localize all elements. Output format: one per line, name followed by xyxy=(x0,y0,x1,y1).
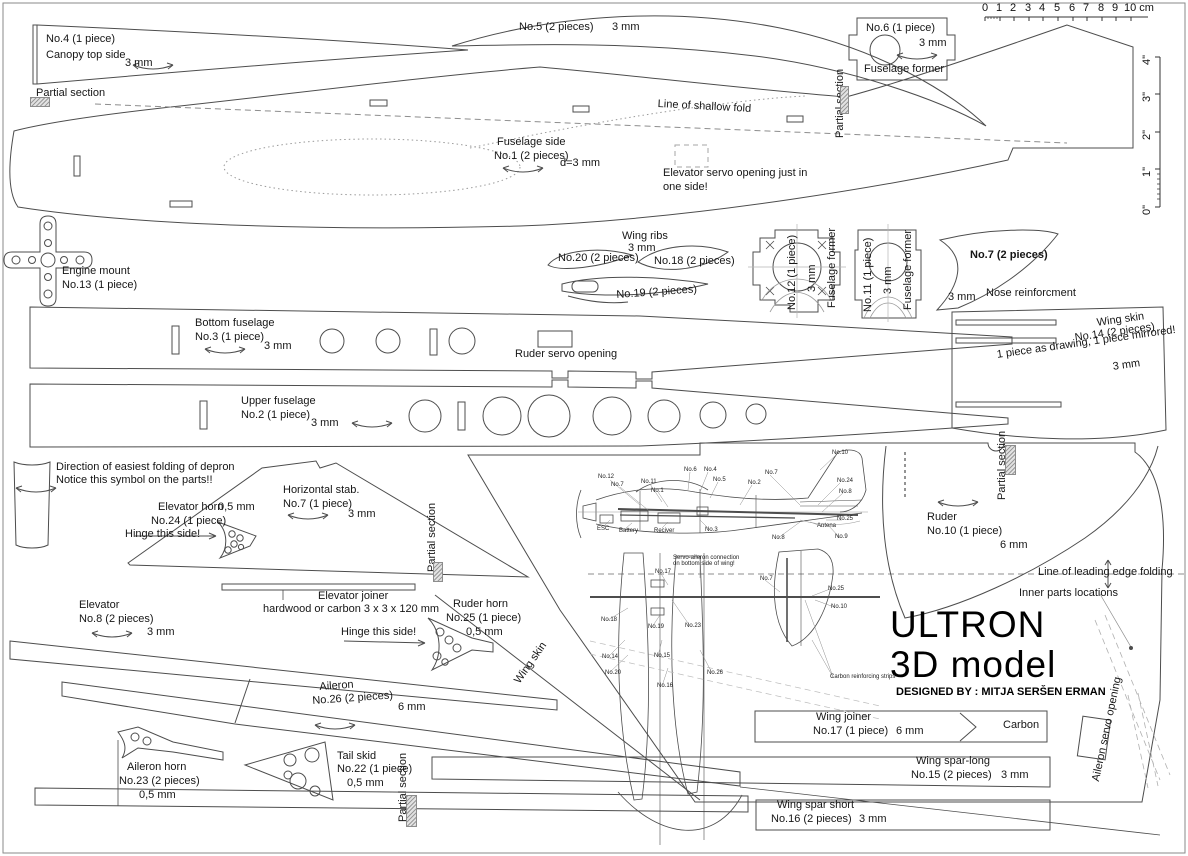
ruler-cm-6: 6 xyxy=(1069,2,1075,14)
model-label: No.25 xyxy=(828,586,844,592)
wing-skin-main-part xyxy=(435,443,1185,802)
label-sparshort-thick: 3 mm xyxy=(859,813,887,825)
model-label: No.5 xyxy=(713,477,726,483)
label-sparlong-thick: 3 mm xyxy=(1001,769,1029,781)
label-no18: No.18 (2 pieces) xyxy=(654,255,735,267)
model-label: ESC xyxy=(597,526,609,532)
label-ehorn-no: No.24 (1 piece) xyxy=(151,515,226,527)
model-label: No.20 xyxy=(605,670,621,676)
label-hstab-thick: 3 mm xyxy=(348,508,376,520)
model-label: No.8 xyxy=(772,535,785,541)
ruler-in-3: 3" xyxy=(1141,92,1153,102)
model-label: No.9 xyxy=(835,534,848,540)
model-label: No.2 xyxy=(748,480,761,486)
label-sparshort-name: Wing spar short xyxy=(777,799,854,811)
label-ahorn-no: No.23 (2 pieces) xyxy=(119,775,200,787)
label-tskid-thick: 0,5 mm xyxy=(347,777,384,789)
label-aileron-name: Aileron xyxy=(319,679,354,693)
label-no5: No.5 (2 pieces) xyxy=(519,21,594,33)
model-label: No.14 xyxy=(602,654,618,660)
model-label: No.4 xyxy=(704,467,717,473)
label-inner-parts: Inner parts locations xyxy=(1019,587,1118,599)
label-engine-name: Engine mount xyxy=(62,265,130,277)
model-label: No.1 xyxy=(651,488,664,494)
label-leading-edge: Line of leading edge folding xyxy=(1038,566,1173,578)
label-bottom-fus-no: No.3 (1 piece) xyxy=(195,331,264,343)
label-no12-name: Fuselage former xyxy=(826,228,838,308)
ruler-cm-3: 3 xyxy=(1025,2,1031,14)
label-ruder-no: No.10 (1 piece) xyxy=(927,525,1002,537)
model-label: No.25 xyxy=(837,516,853,522)
fuselage-side-part xyxy=(10,25,1133,228)
model-label: No.18 xyxy=(601,617,617,623)
hatch-marker-1 xyxy=(30,97,50,107)
label-wjoiner-thick: 6 mm xyxy=(896,725,924,737)
model-label: No.10 xyxy=(831,604,847,610)
label-ruder-name: Ruder xyxy=(927,511,957,523)
model-label: No.12 xyxy=(598,474,614,480)
aileron-horn-part xyxy=(118,727,223,760)
ruler-in-0: 0" xyxy=(1141,205,1153,215)
label-depron-1: Direction of easiest folding of depron xyxy=(56,461,235,473)
ruler-cm-1: 1 xyxy=(996,2,1002,14)
label-wing-ribs: Wing ribs xyxy=(622,230,668,242)
label-wjoiner-material: Carbon xyxy=(1003,719,1039,731)
elevator-servo-opening xyxy=(675,145,708,167)
plan-sheet: No.4 (1 piece) Canopy top side 3 mm Part… xyxy=(0,0,1188,856)
model-label: Carbon reinforcing strips xyxy=(830,674,895,680)
model-label: No.19 xyxy=(648,624,664,630)
label-nose-name: Nose reinforcment xyxy=(986,287,1076,299)
label-no4: No.4 (1 piece) xyxy=(46,33,115,45)
label-fus-side-name: Fuselage side xyxy=(497,136,566,148)
model-label: No.7 xyxy=(611,482,624,488)
model-label: No.7 xyxy=(760,576,773,582)
model-label: on bottom side of wing! xyxy=(673,561,735,567)
model-label: No.24 xyxy=(837,478,853,484)
label-ehorn-name: Elevator horn xyxy=(158,501,223,513)
label-rhorn-hinge: Hinge this side! xyxy=(341,626,416,638)
model-label: Battery xyxy=(619,528,638,534)
page-subtitle: 3D model xyxy=(890,645,1056,686)
engine-mount-part xyxy=(4,216,92,306)
label-no12: No.12 (1 piece) xyxy=(786,235,798,310)
model-label: Reciver xyxy=(654,528,674,534)
label-elev-servo-2: one side! xyxy=(663,181,708,193)
ruler-in-2: 2" xyxy=(1141,130,1153,140)
label-no6-name: Fuselage former xyxy=(864,63,944,75)
label-elevator-name: Elevator xyxy=(79,599,119,611)
model-label: No.26 xyxy=(707,670,723,676)
label-elevator-thick: 3 mm xyxy=(147,626,175,638)
model-label: No.3 xyxy=(705,527,718,533)
label-wjoiner-no: No.17 (1 piece) xyxy=(813,725,888,737)
ruler-cm-4: 4 xyxy=(1039,2,1045,14)
inch-ruler xyxy=(1155,57,1160,207)
label-no20: No.20 (2 pieces) xyxy=(558,252,639,264)
label-elev-servo-1: Elevator servo opening just in xyxy=(663,167,807,179)
hinge-arrow-ruder xyxy=(344,640,425,646)
ruler-in-4: 4" xyxy=(1141,55,1153,65)
label-hstab-name: Horizontal stab. xyxy=(283,484,359,496)
designer-credit: DESIGNED BY : MITJA SERŠEN ERMAN xyxy=(896,686,1106,698)
label-hstab-no: No.7 (1 piece) xyxy=(283,498,352,510)
label-no5-thick: 3 mm xyxy=(612,21,640,33)
hatch-marker-5 xyxy=(406,795,417,827)
label-rhorn-thick: 0,5 mm xyxy=(466,626,503,638)
label-no12-thick: 3 mm xyxy=(806,265,818,293)
label-upper-fus-thick: 3 mm xyxy=(311,417,339,429)
model-label: No.23 xyxy=(685,623,701,629)
label-no6-thick: 3 mm xyxy=(919,37,947,49)
model-label: No.8 xyxy=(839,489,852,495)
label-sparlong-name: Wing spar-long xyxy=(916,755,990,767)
label-ehorn-thick: 0,5 mm xyxy=(218,501,255,513)
carbon-chevron xyxy=(960,713,976,741)
label-no6: No.6 (1 piece) xyxy=(866,22,935,34)
label-aileron-thick: 6 mm xyxy=(398,701,426,713)
ruler-cm-10: 10 cm xyxy=(1124,2,1154,14)
hatch-marker-2 xyxy=(840,86,849,114)
label-upper-fus-name: Upper fuselage xyxy=(241,395,316,407)
elevator-part xyxy=(10,641,557,710)
label-ejoiner-name: Elevator joiner xyxy=(318,590,388,602)
label-rhorn-no: No.25 (1 piece) xyxy=(446,612,521,624)
label-ruder-thick: 6 mm xyxy=(1000,539,1028,551)
label-elevator-no: No.8 (2 pieces) xyxy=(79,613,154,625)
model-label: No.17 xyxy=(655,569,671,575)
label-bottom-fus-name: Bottom fuselage xyxy=(195,317,275,329)
label-no11-name: Fuselage former xyxy=(902,230,914,310)
label-ejoiner-spec: hardwood or carbon 3 x 3 x 120 mm xyxy=(263,603,439,615)
label-sparshort-no: No.16 (2 pieces) xyxy=(771,813,852,825)
label-bottom-fus-thick: 3 mm xyxy=(264,340,292,352)
ruler-in-1: 1" xyxy=(1141,167,1153,177)
label-canopy-thick: 3 mm xyxy=(125,57,153,69)
label-rhorn-name: Ruder horn xyxy=(453,598,508,610)
model-label: No.15 xyxy=(654,653,670,659)
model-label: No.7 xyxy=(765,470,778,476)
label-tskid-name: Tail skid xyxy=(337,750,376,762)
ruler-cm-7: 7 xyxy=(1083,2,1089,14)
label-sparlong-no: No.15 (2 pieces) xyxy=(911,769,992,781)
hatch-marker-3 xyxy=(433,562,443,582)
model-label: No.11 xyxy=(641,479,657,485)
label-no11: No.11 (1 piece) xyxy=(862,238,874,312)
label-fus-side-no: No.1 (2 pieces) xyxy=(494,150,569,162)
model-label: No.6 xyxy=(684,467,697,473)
label-depron-2: Notice this symbol on the parts!! xyxy=(56,474,213,486)
label-fus-side-thick: d=3 mm xyxy=(560,157,600,169)
label-no7-nose: No.7 (2 pieces) xyxy=(970,249,1048,261)
ruler-cm-9: 9 xyxy=(1112,2,1118,14)
page-title: ULTRON xyxy=(890,605,1045,646)
ruler-cm-2: 2 xyxy=(1010,2,1016,14)
model-label: No.10 xyxy=(832,450,848,456)
model-label: Antena xyxy=(817,523,836,529)
shallow-fold-line xyxy=(95,104,1067,143)
upper-fuselage-part xyxy=(30,380,1008,447)
model-label: No.16 xyxy=(657,683,673,689)
label-upper-fus-no: No.2 (1 piece) xyxy=(241,409,310,421)
label-nose-thick: 3 mm xyxy=(948,291,976,303)
ruler-cm-5: 5 xyxy=(1054,2,1060,14)
ruler-cm-8: 8 xyxy=(1098,2,1104,14)
label-ehorn-hinge: Hinge this side! xyxy=(125,528,200,540)
label-ahorn-thick: 0,5 mm xyxy=(139,789,176,801)
label-ruder-servo: Ruder servo opening xyxy=(515,348,617,360)
hatch-marker-4 xyxy=(1005,445,1016,475)
label-canopy-name: Canopy top side xyxy=(46,49,126,61)
label-ahorn-name: Aileron horn xyxy=(127,761,186,773)
label-no11-thick: 3 mm xyxy=(882,267,894,295)
label-wjoiner-name: Wing joiner xyxy=(816,711,871,723)
label-engine-no: No.13 (1 piece) xyxy=(62,279,137,291)
depron-fold-symbol xyxy=(14,462,50,548)
cm-ruler xyxy=(985,17,1148,21)
ruler-cm-0: 0 xyxy=(982,2,988,14)
